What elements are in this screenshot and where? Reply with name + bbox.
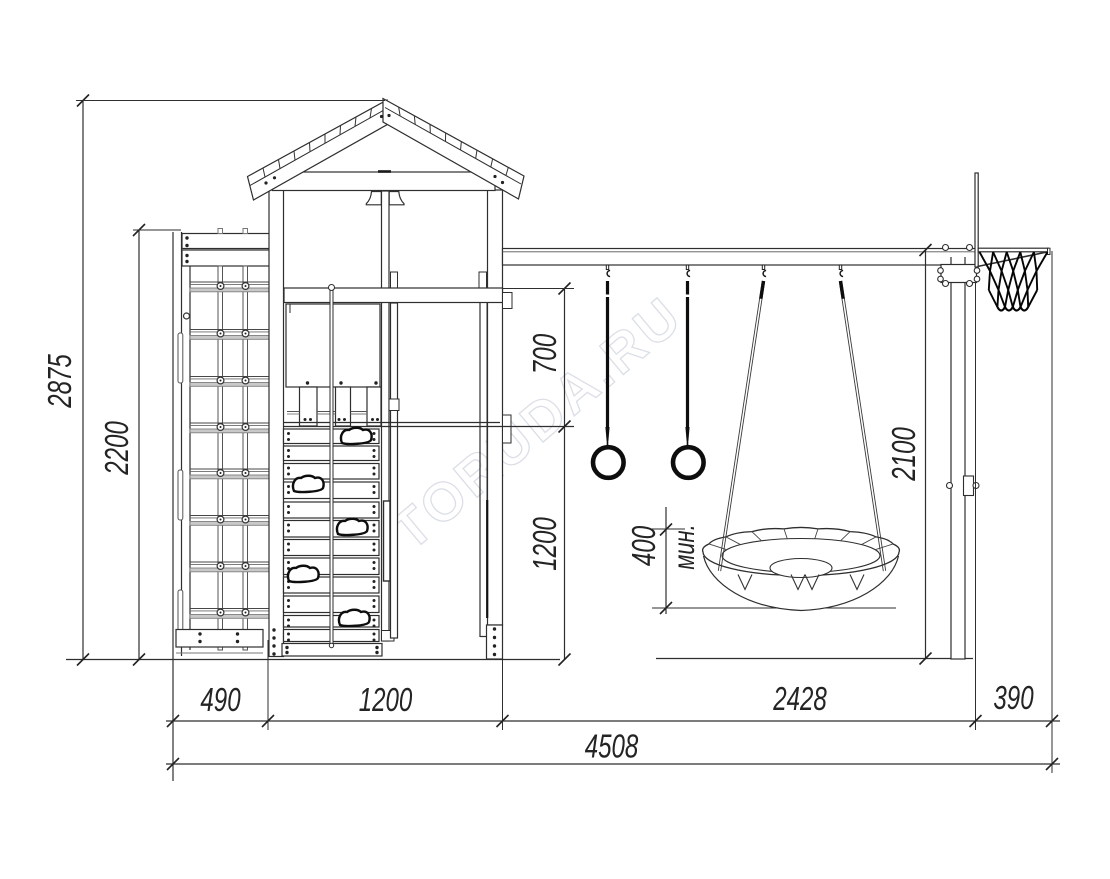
svg-text:2100: 2100 bbox=[886, 427, 923, 481]
svg-text:490: 490 bbox=[200, 682, 240, 719]
svg-text:1200: 1200 bbox=[527, 517, 564, 571]
svg-text:2200: 2200 bbox=[99, 421, 136, 475]
svg-text:мин.: мин. bbox=[667, 524, 701, 569]
svg-text:4508: 4508 bbox=[585, 729, 639, 766]
svg-text:2875: 2875 bbox=[42, 353, 79, 408]
svg-text:1200: 1200 bbox=[359, 682, 413, 719]
svg-text:400: 400 bbox=[626, 526, 663, 566]
svg-text:700: 700 bbox=[527, 334, 564, 374]
svg-text:390: 390 bbox=[993, 680, 1033, 717]
svg-text:2428: 2428 bbox=[772, 681, 826, 718]
